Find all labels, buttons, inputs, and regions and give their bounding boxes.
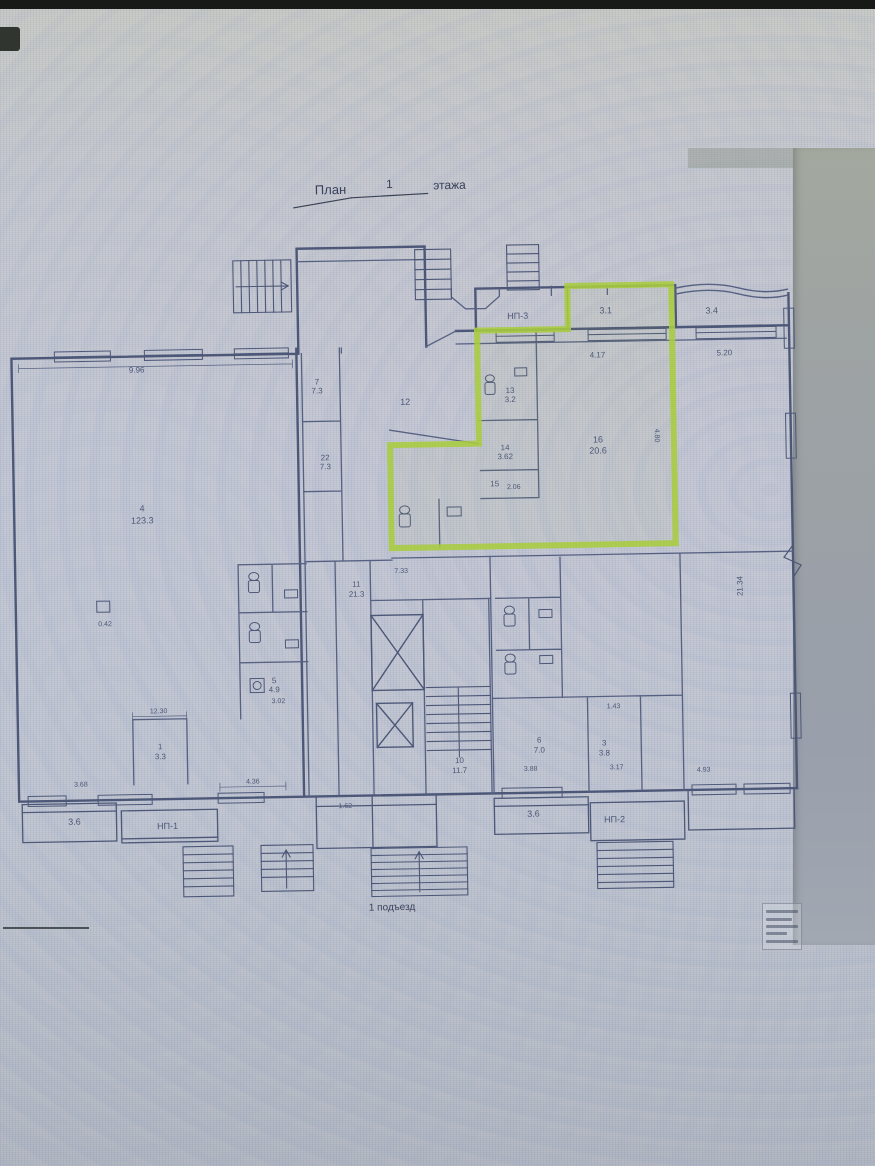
plan-label: 1 [386, 177, 393, 191]
plan-label: 5 [272, 676, 277, 685]
plan-label: НП-3 [507, 311, 528, 321]
plan-label: 3.88 [524, 766, 538, 773]
plan-label: 3.02 [272, 698, 286, 705]
plan-label: 7 [315, 377, 320, 386]
plan-label: План [315, 182, 347, 198]
canopy-lines [675, 283, 787, 299]
plan-label: 16 [593, 434, 603, 444]
plan-label: 3 [602, 738, 607, 747]
plan-label: 3.1 [599, 305, 612, 315]
plan-label: НП-2 [604, 814, 625, 824]
plan-label: 4.36 [246, 778, 260, 785]
plan-label: этажа [433, 178, 466, 193]
plan-label: 1.43 [607, 703, 621, 710]
plan-label: 12 [400, 397, 410, 407]
plan-label: 3.8 [599, 748, 611, 757]
plan-label: 2.06 [507, 484, 521, 491]
plan-label: 0.42 [98, 621, 112, 628]
title-underline [294, 193, 428, 207]
plan-label: 4.9 [269, 685, 281, 694]
plan-label: 22 [321, 453, 331, 462]
plan-label: 11.7 [452, 766, 468, 775]
plan-label: 9.96 [129, 365, 145, 374]
highlight-outline [387, 284, 675, 548]
plan-label: 20.6 [589, 445, 607, 455]
porches [22, 788, 795, 853]
plan-label: 3.2 [505, 395, 517, 404]
plan-label: 7.0 [534, 745, 546, 754]
plan-label: 7.33 [394, 568, 408, 575]
plan-label: 12.30 [150, 708, 168, 715]
plan-label: 21.3 [349, 590, 365, 599]
plan-label: 4.80 [653, 429, 660, 443]
plan-label: 3.6 [68, 817, 81, 827]
plan-label: 1.62 [338, 803, 352, 810]
plan-label: 6 [537, 736, 542, 745]
plan-label: 10 [455, 756, 465, 765]
plan-label: 21.34 [735, 575, 744, 596]
plan-label: 3.3 [155, 752, 167, 761]
plan-label: 4 [139, 503, 144, 513]
plan-label: 3.6 [527, 809, 540, 819]
plan-label: 5.20 [717, 348, 733, 357]
plan-label: 3.17 [610, 764, 624, 771]
plan-label: 3.68 [74, 781, 88, 788]
plan-label: 14 [501, 443, 511, 452]
plan-label: 11 [352, 580, 361, 589]
plan-label: 4.17 [590, 350, 606, 359]
plan-label: 3.4 [705, 305, 718, 315]
plan-label: 13 [506, 386, 516, 395]
plan-label: 1 подъезд [369, 902, 416, 914]
elevator-shafts [371, 615, 425, 748]
plan-label: 7.3 [320, 462, 332, 471]
dimension-lines [19, 360, 300, 795]
plan-label: 123.3 [131, 515, 154, 525]
approval-stamp [762, 903, 802, 950]
plan-label: 1 [158, 742, 163, 751]
plan-label: 3.62 [497, 452, 513, 461]
plan-label: 4.93 [697, 767, 711, 774]
plan-label: НП-1 [157, 821, 178, 831]
plan-label: 7.3 [311, 386, 323, 395]
plan-label: 15 [490, 479, 500, 488]
floor-plan: План1этажаНП-33.13.44.175.209.96133.2127… [0, 0, 875, 1166]
